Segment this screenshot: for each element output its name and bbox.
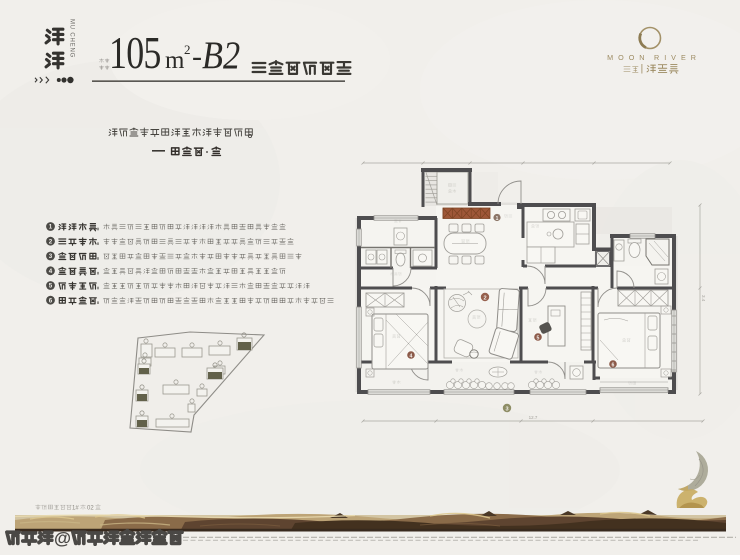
svg-text:02: 02 [87,506,94,512]
svg-text:M O O N: M O O N [607,53,646,62]
svg-text:2: 2 [483,296,486,302]
svg-text:4: 4 [49,268,53,275]
svg-text:6: 6 [612,362,615,368]
svg-text:12.7: 12.7 [529,415,538,420]
svg-text:5: 5 [537,335,540,341]
svg-text:5: 5 [49,283,53,290]
svg-text:R I V E R: R I V E R [654,53,697,62]
svg-text:1: 1 [49,224,53,231]
svg-text:4: 4 [410,353,413,359]
svg-text:-: - [192,40,202,73]
svg-text:m: m [165,47,185,74]
svg-text:@: @ [54,528,71,548]
svg-text:105: 105 [109,28,161,78]
svg-text:1#: 1# [72,506,79,512]
svg-text:3: 3 [505,407,508,413]
svg-text:3: 3 [49,253,53,260]
svg-text:MU CHENG: MU CHENG [69,19,75,58]
svg-text:6: 6 [49,297,53,304]
svg-text:3.4: 3.4 [701,295,706,302]
svg-text:2: 2 [49,238,53,245]
svg-text:1: 1 [496,216,499,222]
svg-text:2: 2 [184,42,191,57]
svg-text:B2: B2 [202,33,240,77]
